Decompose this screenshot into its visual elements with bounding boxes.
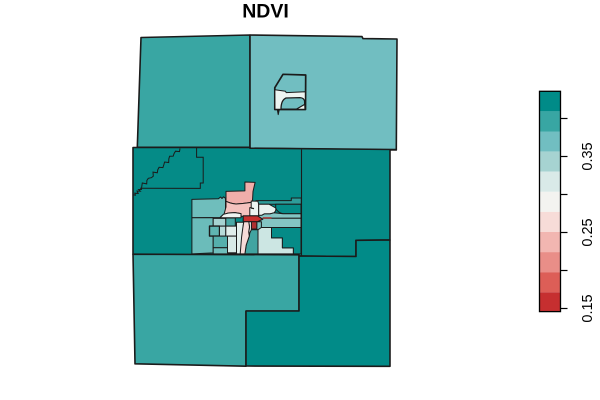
svg-text:NDVI: NDVI — [242, 0, 289, 22]
svg-text:0.15: 0.15 — [580, 294, 596, 322]
svg-text:0.25: 0.25 — [580, 218, 596, 246]
svg-text:0.35: 0.35 — [580, 142, 596, 170]
